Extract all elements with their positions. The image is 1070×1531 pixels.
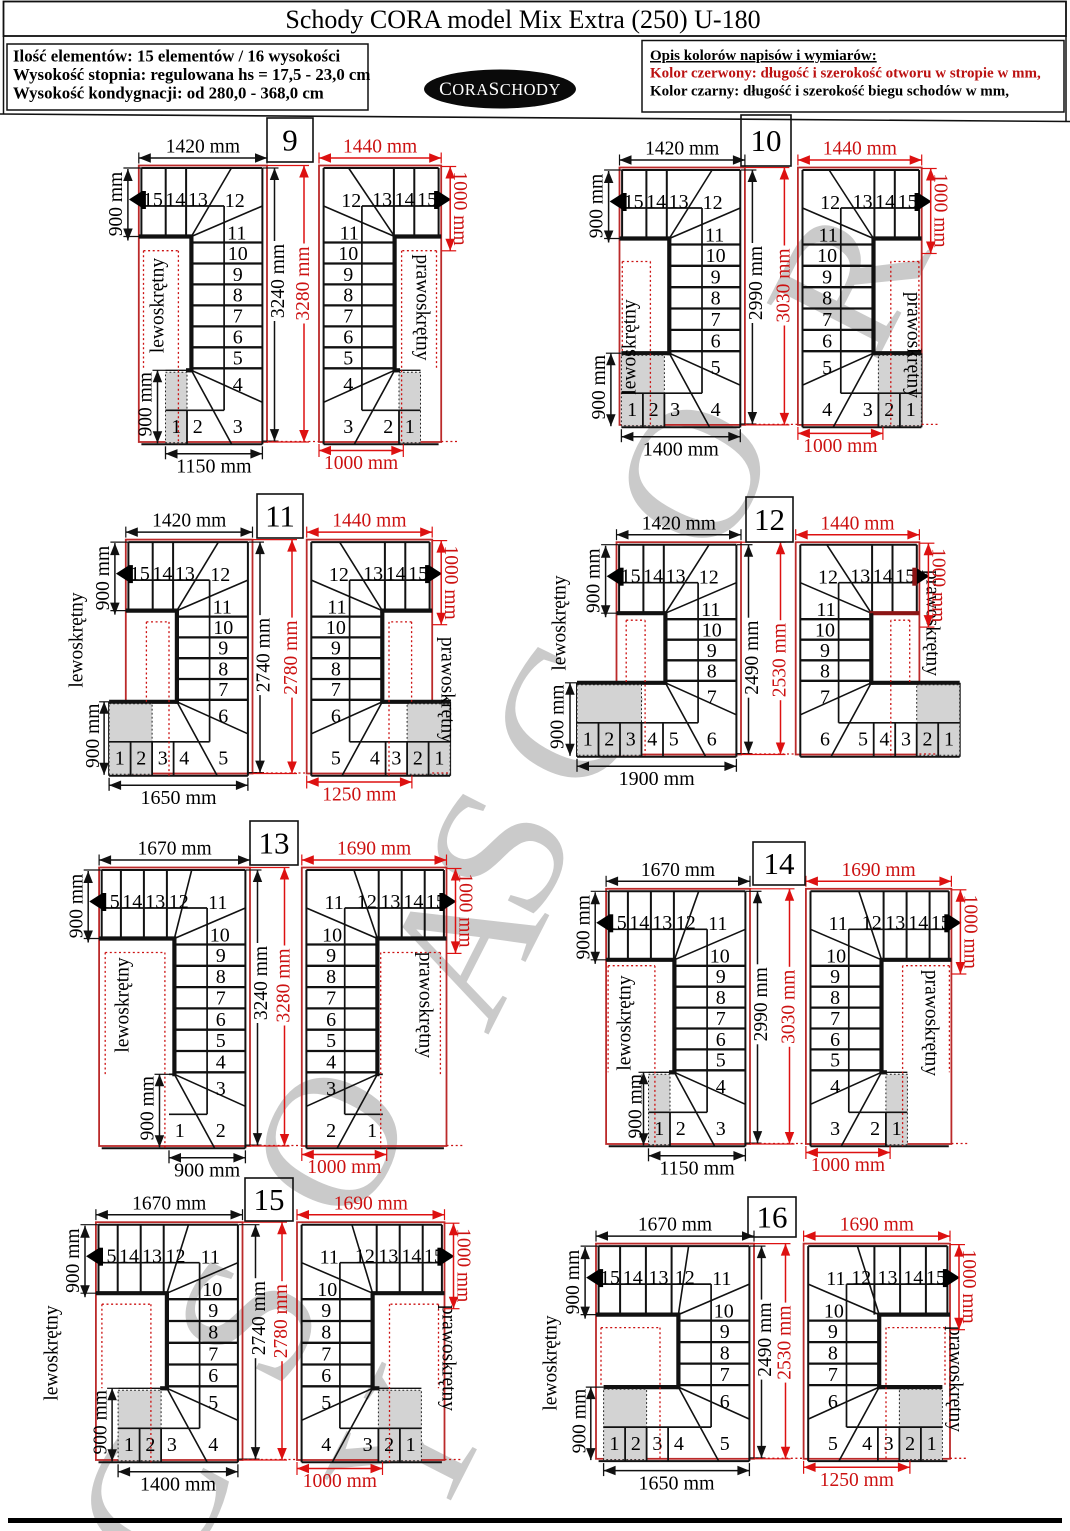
svg-text:11: 11 xyxy=(213,596,232,618)
svg-text:3030 mm: 3030 mm xyxy=(774,248,795,322)
svg-text:900 mm: 900 mm xyxy=(66,874,87,938)
svg-text:5: 5 xyxy=(216,1030,226,1052)
svg-text:1420 mm: 1420 mm xyxy=(166,137,240,158)
svg-text:1440 mm: 1440 mm xyxy=(823,139,897,160)
svg-text:900 mm: 900 mm xyxy=(587,174,608,238)
svg-text:7: 7 xyxy=(820,687,830,709)
svg-text:14: 14 xyxy=(152,563,172,585)
svg-text:10: 10 xyxy=(826,946,846,968)
svg-text:4: 4 xyxy=(674,1433,684,1455)
svg-text:lewoskrętny: lewoskrętny xyxy=(67,592,88,688)
svg-text:7: 7 xyxy=(707,687,717,709)
svg-text:13: 13 xyxy=(372,189,392,211)
svg-text:12: 12 xyxy=(329,564,349,586)
svg-text:14: 14 xyxy=(623,1267,643,1289)
svg-text:4: 4 xyxy=(233,374,243,396)
svg-text:10: 10 xyxy=(326,617,346,639)
svg-text:10: 10 xyxy=(817,245,837,267)
svg-text:9: 9 xyxy=(321,1300,331,1322)
svg-text:4: 4 xyxy=(862,1433,872,1455)
svg-text:12: 12 xyxy=(169,891,189,913)
svg-text:9: 9 xyxy=(828,1321,838,1343)
svg-text:7: 7 xyxy=(711,309,721,331)
svg-text:8: 8 xyxy=(716,987,726,1009)
svg-text:1: 1 xyxy=(367,1120,377,1142)
svg-text:13: 13 xyxy=(188,189,208,211)
svg-text:Wysokość kondygnacji: od 280,0: Wysokość kondygnacji: od 280,0 - 368,0 c… xyxy=(13,84,324,103)
svg-text:12: 12 xyxy=(851,1267,871,1289)
svg-text:900 mm: 900 mm xyxy=(136,372,157,436)
svg-text:8: 8 xyxy=(720,1343,730,1365)
svg-text:14: 14 xyxy=(386,563,406,585)
svg-text:14: 14 xyxy=(395,189,415,211)
svg-text:5: 5 xyxy=(858,729,868,751)
svg-text:1420 mm: 1420 mm xyxy=(642,513,716,534)
svg-text:7: 7 xyxy=(343,306,353,328)
svg-text:5: 5 xyxy=(321,1392,331,1414)
svg-text:14: 14 xyxy=(643,566,663,588)
svg-text:prawoskrętny: prawoskrętny xyxy=(944,1326,965,1432)
svg-text:1420 mm: 1420 mm xyxy=(152,511,226,532)
svg-text:10: 10 xyxy=(228,243,248,265)
svg-text:1000 mm: 1000 mm xyxy=(959,895,980,969)
svg-text:5: 5 xyxy=(830,1050,840,1072)
svg-text:4: 4 xyxy=(343,374,353,396)
svg-text:13: 13 xyxy=(652,912,672,934)
svg-text:5: 5 xyxy=(326,1030,336,1052)
svg-text:9: 9 xyxy=(282,123,298,158)
svg-text:8: 8 xyxy=(208,1322,218,1344)
svg-text:10: 10 xyxy=(706,245,726,267)
svg-text:900 mm: 900 mm xyxy=(584,548,605,612)
svg-text:lewoskrętny: lewoskrętny xyxy=(620,299,641,395)
svg-text:1250 mm: 1250 mm xyxy=(820,1470,894,1491)
svg-text:2: 2 xyxy=(631,1433,641,1455)
svg-text:13: 13 xyxy=(142,1246,162,1268)
svg-text:6: 6 xyxy=(343,327,353,349)
svg-text:1: 1 xyxy=(171,416,181,438)
svg-text:1000 mm: 1000 mm xyxy=(303,1471,377,1492)
svg-text:2: 2 xyxy=(884,399,894,421)
svg-text:11: 11 xyxy=(701,599,720,621)
svg-text:1000 mm: 1000 mm xyxy=(811,1155,885,1176)
svg-text:3280 mm: 3280 mm xyxy=(274,948,295,1022)
svg-text:1: 1 xyxy=(892,1118,902,1140)
svg-text:11: 11 xyxy=(705,224,724,246)
svg-text:13: 13 xyxy=(666,566,686,588)
svg-text:3: 3 xyxy=(158,748,168,770)
svg-text:900 mm: 900 mm xyxy=(93,546,114,610)
svg-text:6: 6 xyxy=(820,729,830,751)
svg-text:4: 4 xyxy=(830,1076,840,1098)
svg-text:3: 3 xyxy=(343,416,353,438)
svg-text:5: 5 xyxy=(669,729,679,751)
svg-text:3240 mm: 3240 mm xyxy=(251,946,272,1020)
svg-text:10: 10 xyxy=(815,619,835,641)
svg-text:3: 3 xyxy=(363,1434,373,1456)
svg-text:4: 4 xyxy=(179,748,189,770)
svg-text:900 mm: 900 mm xyxy=(91,1390,112,1454)
svg-text:3: 3 xyxy=(652,1433,662,1455)
svg-text:900 mm: 900 mm xyxy=(626,1074,647,1138)
svg-text:14: 14 xyxy=(401,1246,421,1268)
svg-text:900 mm: 900 mm xyxy=(83,704,104,768)
svg-text:Kolor czarny: długość i szerok: Kolor czarny: długość i szerokość biegu … xyxy=(650,84,1009,100)
svg-text:1000 mm: 1000 mm xyxy=(440,545,461,619)
svg-text:3: 3 xyxy=(216,1078,226,1100)
svg-text:4: 4 xyxy=(716,1076,726,1098)
svg-text:10: 10 xyxy=(213,617,233,639)
svg-text:1: 1 xyxy=(175,1120,185,1142)
svg-text:1: 1 xyxy=(906,399,916,421)
svg-text:10: 10 xyxy=(317,1279,337,1301)
svg-text:6: 6 xyxy=(720,1391,730,1413)
svg-text:13: 13 xyxy=(878,1267,898,1289)
svg-text:Kolor czerwony: długość i szer: Kolor czerwony: długość i szerokość otwo… xyxy=(650,66,1041,82)
svg-text:CORASCHODY: CORASCHODY xyxy=(439,79,561,100)
svg-text:10: 10 xyxy=(824,1300,844,1322)
svg-text:13: 13 xyxy=(853,191,873,213)
svg-text:900 mm: 900 mm xyxy=(63,1228,84,1292)
svg-text:14: 14 xyxy=(646,191,666,213)
svg-text:4: 4 xyxy=(216,1052,226,1074)
svg-text:10: 10 xyxy=(322,924,342,946)
svg-text:5: 5 xyxy=(233,348,243,370)
svg-text:11: 11 xyxy=(818,224,837,246)
svg-text:11: 11 xyxy=(712,1268,731,1290)
svg-text:9: 9 xyxy=(218,638,228,660)
svg-text:1000 mm: 1000 mm xyxy=(452,1228,473,1302)
svg-text:2: 2 xyxy=(923,729,933,751)
svg-text:1: 1 xyxy=(434,748,444,770)
svg-text:1440 mm: 1440 mm xyxy=(343,137,417,158)
svg-text:1650 mm: 1650 mm xyxy=(638,1472,715,1494)
svg-text:9: 9 xyxy=(216,945,226,967)
svg-text:6: 6 xyxy=(830,1029,840,1051)
svg-text:1670 mm: 1670 mm xyxy=(132,1193,206,1214)
svg-text:lewoskrętny: lewoskrętny xyxy=(550,575,571,671)
svg-text:3: 3 xyxy=(901,729,911,751)
svg-text:10: 10 xyxy=(202,1279,222,1301)
svg-text:14: 14 xyxy=(764,846,796,881)
svg-text:1150 mm: 1150 mm xyxy=(176,456,252,478)
svg-text:10: 10 xyxy=(714,1300,734,1322)
svg-text:7: 7 xyxy=(321,1343,331,1365)
svg-text:1000 mm: 1000 mm xyxy=(930,173,951,247)
svg-text:10: 10 xyxy=(710,946,730,968)
svg-text:prawoskrętny: prawoskrętny xyxy=(437,1305,458,1411)
svg-text:6: 6 xyxy=(331,706,341,728)
svg-text:2: 2 xyxy=(136,748,146,770)
svg-text:3: 3 xyxy=(884,1433,894,1455)
svg-text:14: 14 xyxy=(903,1267,923,1289)
svg-text:Wysokość stopnia: regulowana: Wysokość stopnia: regulowana hs = 17,5 -… xyxy=(13,65,370,84)
svg-text:2: 2 xyxy=(604,729,614,751)
svg-text:prawoskrętny: prawoskrętny xyxy=(414,952,435,1058)
svg-text:1: 1 xyxy=(627,399,637,421)
svg-text:11: 11 xyxy=(828,913,847,935)
svg-text:12: 12 xyxy=(166,1246,186,1268)
svg-text:3: 3 xyxy=(233,416,243,438)
svg-text:Ilość elementów: 15 elementów: Ilość elementów: 15 elementów / 16 wysok… xyxy=(13,47,341,66)
svg-text:1900 mm: 1900 mm xyxy=(619,768,696,790)
svg-text:12: 12 xyxy=(703,192,723,214)
svg-text:1690 mm: 1690 mm xyxy=(841,860,915,881)
svg-text:7: 7 xyxy=(233,306,243,328)
svg-text:13: 13 xyxy=(363,563,383,585)
svg-text:6: 6 xyxy=(218,706,228,728)
svg-text:1000 mm: 1000 mm xyxy=(454,873,475,947)
svg-text:5: 5 xyxy=(828,1433,838,1455)
svg-text:5: 5 xyxy=(331,748,341,770)
svg-text:2: 2 xyxy=(193,416,203,438)
svg-text:12: 12 xyxy=(355,1246,375,1268)
svg-text:1: 1 xyxy=(944,729,954,751)
svg-text:11: 11 xyxy=(208,892,227,914)
svg-text:16: 16 xyxy=(757,1200,788,1235)
svg-text:14: 14 xyxy=(165,189,185,211)
svg-text:7: 7 xyxy=(716,1008,726,1030)
svg-text:2: 2 xyxy=(870,1118,880,1140)
svg-text:3280 mm: 3280 mm xyxy=(293,246,314,320)
svg-text:12: 12 xyxy=(699,567,719,589)
svg-text:14: 14 xyxy=(119,1246,139,1268)
svg-text:1690 mm: 1690 mm xyxy=(337,839,411,860)
svg-text:6: 6 xyxy=(321,1365,331,1387)
svg-text:2780 mm: 2780 mm xyxy=(271,1284,292,1358)
svg-text:11: 11 xyxy=(816,599,835,621)
svg-text:13: 13 xyxy=(669,191,689,213)
svg-text:7: 7 xyxy=(331,679,341,701)
svg-text:2740 mm: 2740 mm xyxy=(249,1281,270,1355)
svg-text:900 mm: 900 mm xyxy=(573,895,594,959)
svg-text:11: 11 xyxy=(227,222,246,244)
svg-text:2490 mm: 2490 mm xyxy=(755,1302,776,1376)
svg-text:4: 4 xyxy=(711,399,721,421)
svg-text:8: 8 xyxy=(343,285,353,307)
svg-text:900 mm: 900 mm xyxy=(138,1076,159,1140)
svg-text:1: 1 xyxy=(654,1118,664,1140)
svg-text:2: 2 xyxy=(326,1120,336,1142)
svg-text:12: 12 xyxy=(818,567,838,589)
svg-text:12: 12 xyxy=(676,912,696,934)
svg-text:4: 4 xyxy=(208,1434,218,1456)
svg-text:6: 6 xyxy=(822,330,832,352)
svg-text:12: 12 xyxy=(862,912,882,934)
svg-text:1: 1 xyxy=(609,1433,619,1455)
svg-text:8: 8 xyxy=(707,660,717,682)
svg-text:3240 mm: 3240 mm xyxy=(268,244,289,318)
svg-text:2740 mm: 2740 mm xyxy=(254,618,275,692)
svg-text:1670 mm: 1670 mm xyxy=(137,839,211,860)
svg-text:7: 7 xyxy=(208,1343,218,1365)
svg-text:13: 13 xyxy=(885,912,905,934)
svg-text:5: 5 xyxy=(711,357,721,379)
svg-text:8: 8 xyxy=(321,1322,331,1344)
svg-text:1000 mm: 1000 mm xyxy=(449,171,470,245)
svg-text:7: 7 xyxy=(216,988,226,1010)
svg-text:6: 6 xyxy=(707,729,717,751)
svg-text:5: 5 xyxy=(822,357,832,379)
svg-text:8: 8 xyxy=(711,288,721,310)
svg-text:12: 12 xyxy=(675,1267,695,1289)
svg-text:Opis kolorów napisów i wymiaró: Opis kolorów napisów i wymiarów: xyxy=(650,48,877,64)
svg-text:8: 8 xyxy=(216,966,226,988)
svg-text:5: 5 xyxy=(343,348,353,370)
svg-text:6: 6 xyxy=(326,1009,336,1031)
svg-text:9: 9 xyxy=(822,266,832,288)
svg-text:9: 9 xyxy=(208,1300,218,1322)
svg-text:12: 12 xyxy=(225,190,245,212)
svg-text:1: 1 xyxy=(927,1433,937,1455)
svg-text:6: 6 xyxy=(216,1009,226,1031)
svg-text:13: 13 xyxy=(259,826,290,861)
svg-text:5: 5 xyxy=(720,1433,730,1455)
svg-text:1440 mm: 1440 mm xyxy=(820,513,894,534)
svg-text:9: 9 xyxy=(707,640,717,662)
svg-text:2: 2 xyxy=(905,1433,915,1455)
svg-text:900 mm: 900 mm xyxy=(106,172,127,236)
svg-text:2: 2 xyxy=(676,1118,686,1140)
svg-text:6: 6 xyxy=(233,327,243,349)
svg-text:9: 9 xyxy=(326,945,336,967)
svg-text:13: 13 xyxy=(380,891,400,913)
svg-text:6: 6 xyxy=(711,330,721,352)
svg-text:12: 12 xyxy=(210,564,230,586)
svg-text:3: 3 xyxy=(716,1118,726,1140)
svg-text:13: 13 xyxy=(175,563,195,585)
svg-text:11: 11 xyxy=(826,1268,845,1290)
svg-text:11: 11 xyxy=(327,596,346,618)
svg-text:4: 4 xyxy=(370,748,380,770)
svg-text:900 mm: 900 mm xyxy=(174,1160,241,1182)
svg-text:1000 mm: 1000 mm xyxy=(324,453,398,474)
svg-text:14: 14 xyxy=(873,566,893,588)
svg-text:3: 3 xyxy=(626,729,636,751)
svg-text:9: 9 xyxy=(233,264,243,286)
svg-text:2490 mm: 2490 mm xyxy=(742,621,763,695)
svg-text:900 mm: 900 mm xyxy=(548,685,569,749)
svg-text:1000 mm: 1000 mm xyxy=(958,1249,979,1323)
svg-text:7: 7 xyxy=(830,1008,840,1030)
svg-text:Schody CORA model Mix Extra (2: Schody CORA model Mix Extra (250) U-180 xyxy=(285,5,760,34)
svg-text:15: 15 xyxy=(254,1182,285,1217)
svg-text:13: 13 xyxy=(378,1246,398,1268)
svg-text:1670 mm: 1670 mm xyxy=(638,1215,712,1236)
svg-text:8: 8 xyxy=(830,987,840,1009)
svg-text:4: 4 xyxy=(647,729,657,751)
svg-text:3: 3 xyxy=(167,1434,177,1456)
svg-text:1690 mm: 1690 mm xyxy=(840,1215,914,1236)
svg-text:2: 2 xyxy=(216,1120,226,1142)
svg-text:8: 8 xyxy=(326,966,336,988)
svg-text:lewoskrętny: lewoskrętny xyxy=(112,957,133,1053)
svg-text:5: 5 xyxy=(208,1392,218,1414)
svg-text:1000 mm: 1000 mm xyxy=(307,1157,381,1178)
svg-text:prawoskrętny: prawoskrętny xyxy=(412,254,433,360)
svg-text:13: 13 xyxy=(145,891,165,913)
svg-text:1420 mm: 1420 mm xyxy=(645,139,719,160)
svg-text:10: 10 xyxy=(338,243,358,265)
svg-text:8: 8 xyxy=(828,1343,838,1365)
svg-text:2990 mm: 2990 mm xyxy=(746,246,767,320)
svg-text:7: 7 xyxy=(326,988,336,1010)
svg-text:9: 9 xyxy=(711,266,721,288)
svg-text:6: 6 xyxy=(828,1391,838,1413)
svg-text:1: 1 xyxy=(406,1434,416,1456)
svg-text:1: 1 xyxy=(124,1434,134,1456)
svg-text:12: 12 xyxy=(341,190,361,212)
svg-text:4: 4 xyxy=(880,729,890,751)
svg-text:8: 8 xyxy=(218,658,228,680)
svg-text:1150 mm: 1150 mm xyxy=(659,1158,735,1180)
svg-text:1: 1 xyxy=(405,416,415,438)
svg-text:2990 mm: 2990 mm xyxy=(751,967,772,1041)
svg-text:2: 2 xyxy=(413,748,423,770)
svg-text:9: 9 xyxy=(830,966,840,988)
svg-text:2780 mm: 2780 mm xyxy=(281,620,302,694)
svg-text:3030 mm: 3030 mm xyxy=(779,970,800,1044)
svg-text:5: 5 xyxy=(218,748,228,770)
svg-text:9: 9 xyxy=(820,640,830,662)
svg-text:7: 7 xyxy=(828,1364,838,1386)
svg-text:11: 11 xyxy=(324,892,343,914)
svg-text:lewoskrętny: lewoskrętny xyxy=(147,258,168,354)
svg-text:4: 4 xyxy=(326,1052,336,1074)
svg-text:1400 mm: 1400 mm xyxy=(643,439,720,461)
svg-text:10: 10 xyxy=(702,619,722,641)
svg-text:9: 9 xyxy=(720,1321,730,1343)
svg-text:10: 10 xyxy=(751,123,782,158)
svg-text:14: 14 xyxy=(908,912,928,934)
svg-text:8: 8 xyxy=(822,288,832,310)
svg-text:900 mm: 900 mm xyxy=(563,1250,584,1314)
svg-text:10: 10 xyxy=(210,924,230,946)
svg-text:11: 11 xyxy=(708,913,727,935)
svg-text:13: 13 xyxy=(850,566,870,588)
svg-text:lewoskrętny: lewoskrętny xyxy=(541,1315,562,1411)
svg-text:7: 7 xyxy=(822,309,832,331)
svg-text:9: 9 xyxy=(343,264,353,286)
svg-text:1: 1 xyxy=(583,729,593,751)
svg-text:lewoskrętny: lewoskrętny xyxy=(42,1305,63,1401)
svg-text:prawoskrętny: prawoskrętny xyxy=(920,970,941,1076)
svg-text:2: 2 xyxy=(383,416,393,438)
svg-text:14: 14 xyxy=(875,191,895,213)
svg-text:11: 11 xyxy=(320,1247,339,1269)
svg-text:14: 14 xyxy=(122,891,142,913)
svg-text:9: 9 xyxy=(331,638,341,660)
svg-text:1250 mm: 1250 mm xyxy=(322,785,396,806)
svg-text:prawoskrętny: prawoskrętny xyxy=(902,292,923,398)
svg-text:12: 12 xyxy=(754,502,785,537)
svg-text:8: 8 xyxy=(820,660,830,682)
svg-text:12: 12 xyxy=(357,891,377,913)
svg-text:12: 12 xyxy=(820,192,840,214)
svg-text:2530 mm: 2530 mm xyxy=(770,623,791,697)
svg-text:1690 mm: 1690 mm xyxy=(334,1193,408,1214)
svg-text:4: 4 xyxy=(321,1434,331,1456)
svg-text:8: 8 xyxy=(233,285,243,307)
svg-text:11: 11 xyxy=(265,499,295,534)
svg-text:6: 6 xyxy=(716,1029,726,1051)
svg-text:14: 14 xyxy=(629,912,649,934)
svg-text:9: 9 xyxy=(716,966,726,988)
svg-text:1440 mm: 1440 mm xyxy=(332,511,406,532)
svg-text:6: 6 xyxy=(208,1365,218,1387)
svg-text:900 mm: 900 mm xyxy=(589,355,610,419)
svg-text:prawoskrętny: prawoskrętny xyxy=(436,637,457,743)
